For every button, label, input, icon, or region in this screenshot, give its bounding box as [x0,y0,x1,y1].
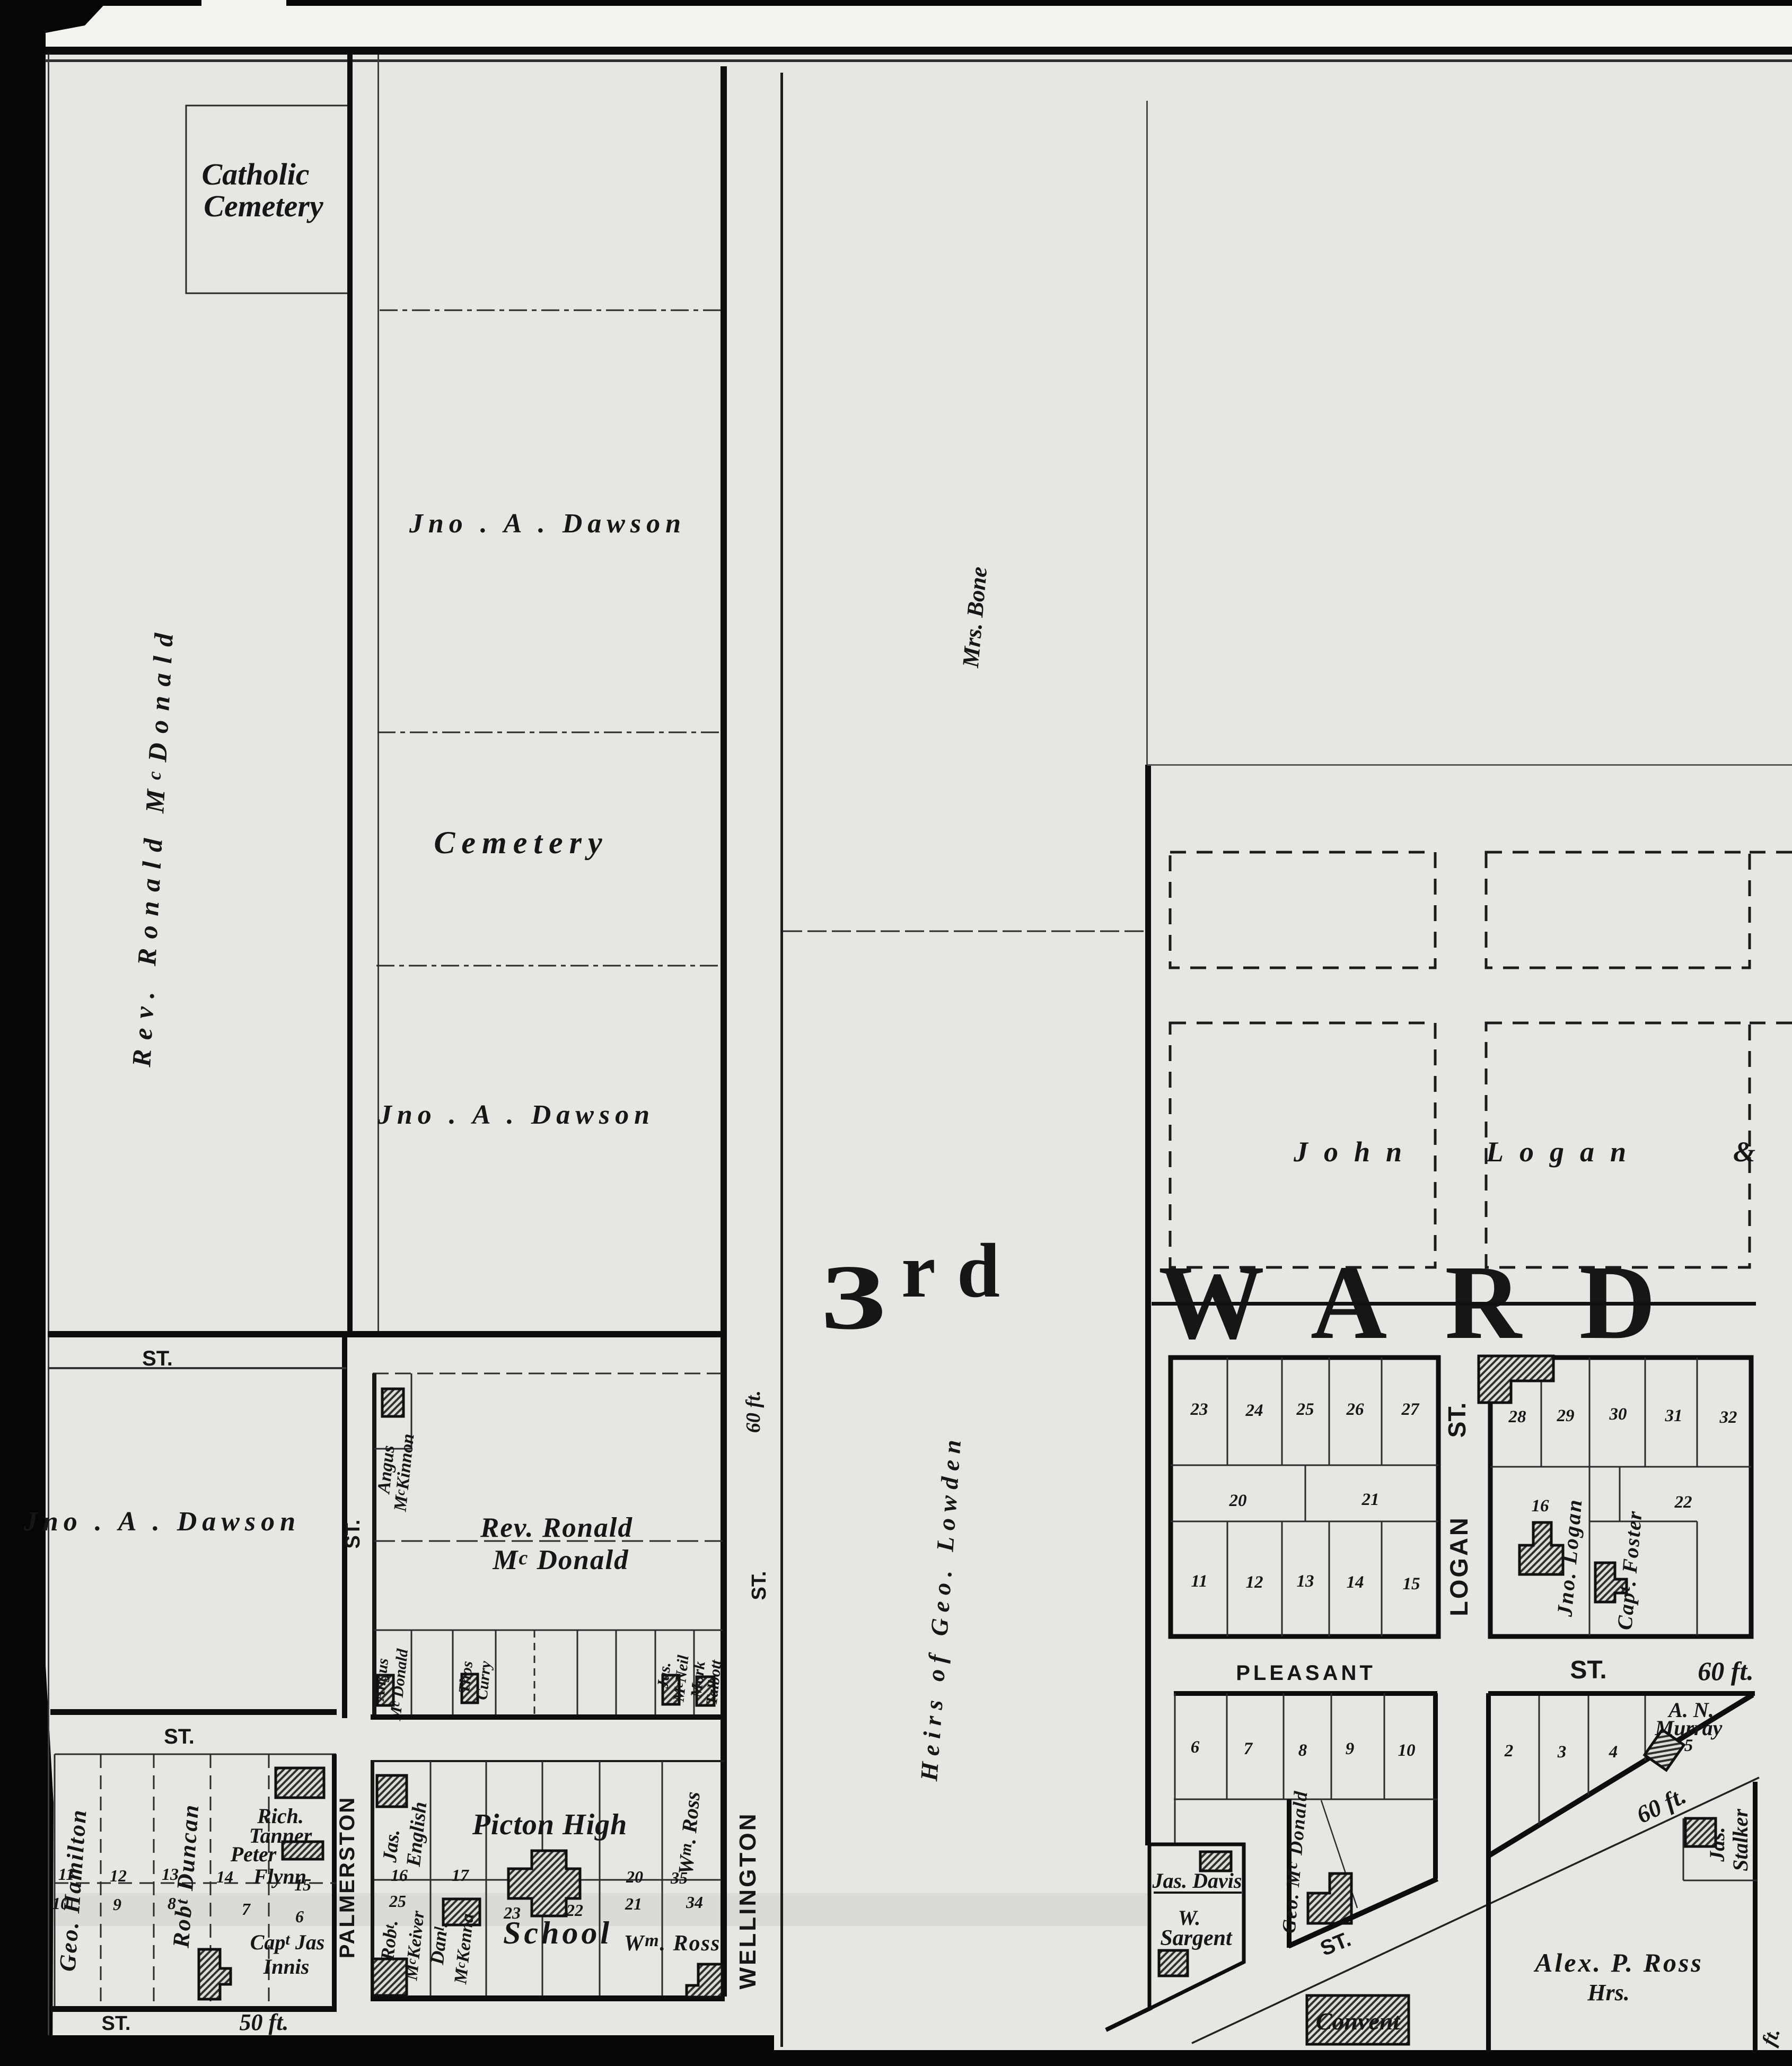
svg-text:10: 10 [1398,1741,1416,1760]
svg-text:11: 11 [1191,1572,1207,1591]
svg-text:Convent: Convent [1316,2008,1401,2035]
svg-text:25: 25 [1296,1400,1314,1419]
svg-text:21: 21 [625,1894,642,1913]
svg-text:3: 3 [1557,1743,1567,1762]
svg-text:Innis: Innis [263,1955,310,1979]
svg-text:Catholic: Catholic [201,157,309,191]
svg-text:6: 6 [1191,1738,1200,1757]
svg-text:20: 20 [626,1867,643,1886]
svg-text:23: 23 [1190,1400,1208,1419]
svg-text:Hrs.: Hrs. [1587,1980,1629,2006]
svg-text:Jno . A . Dawson: Jno . A . Dawson [377,1100,655,1130]
svg-text:12: 12 [110,1866,127,1885]
svg-text:60 ft.: 60 ft. [742,1390,765,1433]
svg-text:15: 15 [1403,1574,1420,1594]
svg-text:60 ft.: 60 ft. [1698,1656,1754,1686]
svg-text:28: 28 [1508,1407,1526,1426]
svg-text:9: 9 [113,1895,121,1914]
svg-text:Peter: Peter [230,1842,277,1866]
svg-text:26: 26 [1346,1400,1365,1419]
svg-text:Sargent: Sargent [1160,1926,1233,1950]
svg-text:WELLINGTON: WELLINGTON [735,1812,761,1990]
svg-text:24: 24 [1245,1401,1263,1420]
svg-text:LOGAN: LOGAN [1445,1516,1473,1616]
svg-text:Jas.: Jas. [654,1661,674,1689]
svg-text:32: 32 [1719,1408,1737,1427]
svg-text:2: 2 [1504,1741,1514,1761]
svg-text:Jno . A . Dawson: Jno . A . Dawson [409,509,686,539]
svg-text:31: 31 [1665,1406,1683,1425]
svg-text:Jas.: Jas. [379,1828,404,1864]
svg-text:12: 12 [1246,1573,1263,1592]
svg-text:Thos: Thos [455,1660,476,1695]
svg-text:PALMERSTON: PALMERSTON [336,1796,359,1958]
svg-text:50 ft.: 50 ft. [240,2009,289,2035]
svg-text:30: 30 [1609,1405,1627,1424]
svg-text:22: 22 [1674,1493,1692,1512]
svg-text:13: 13 [1297,1572,1314,1591]
svg-text:Wm. Ross: Wm. Ross [624,1931,721,1956]
svg-text:Alex. P. Ross: Alex. P. Ross [1533,1948,1703,1977]
svg-text:Jas. Davis: Jas. Davis [1152,1869,1242,1893]
svg-text:&: & [1733,1136,1755,1168]
svg-text:rd: rd [901,1228,1021,1314]
svg-text:6: 6 [295,1907,304,1926]
svg-text:34: 34 [686,1893,703,1912]
svg-text:Logan: Logan [1486,1136,1642,1168]
svg-text:Picton High: Picton High [472,1808,628,1841]
svg-text:7: 7 [242,1899,251,1919]
svg-text:16: 16 [391,1866,408,1885]
svg-text:ST.: ST. [142,1347,173,1370]
svg-text:ST.: ST. [102,2012,131,2035]
svg-text:Cemetery: Cemetery [434,825,608,860]
svg-text:25: 25 [389,1892,406,1911]
svg-text:ST.: ST. [1570,1656,1606,1684]
svg-text:14: 14 [216,1867,233,1886]
svg-text:School: School [503,1915,612,1950]
svg-text:7: 7 [1244,1739,1253,1758]
svg-text:ST.: ST. [342,1520,364,1549]
svg-text:Flynn: Flynn [253,1864,306,1888]
svg-text:16: 16 [1532,1496,1550,1516]
svg-text:Jas.: Jas. [1705,1827,1729,1862]
svg-text:ST.: ST. [1443,1403,1471,1438]
svg-text:Cemetery: Cemetery [204,189,323,223]
svg-text:3: 3 [821,1246,886,1349]
svg-text:ST.: ST. [164,1725,195,1748]
svg-text:Stalker: Stalker [1728,1809,1752,1871]
svg-text:9: 9 [1346,1739,1355,1758]
svg-text:21: 21 [1361,1490,1380,1509]
svg-text:Jno . A . Dawson: Jno . A . Dawson [23,1507,301,1537]
svg-text:John: John [1293,1136,1418,1168]
svg-text:20: 20 [1229,1491,1247,1510]
svg-text:17: 17 [452,1866,470,1885]
svg-text:29: 29 [1557,1406,1575,1425]
svg-text:14: 14 [1347,1573,1364,1592]
svg-text:Rev. Ronald: Rev. Ronald [480,1512,633,1543]
svg-text:8: 8 [1298,1741,1307,1760]
svg-text:ST.: ST. [748,1571,770,1600]
svg-text:Mc Donald: Mc Donald [492,1545,629,1575]
svg-text:27: 27 [1401,1400,1420,1419]
svg-text:4: 4 [1609,1743,1618,1762]
svg-text:PLEASANT: PLEASANT [1236,1661,1376,1685]
